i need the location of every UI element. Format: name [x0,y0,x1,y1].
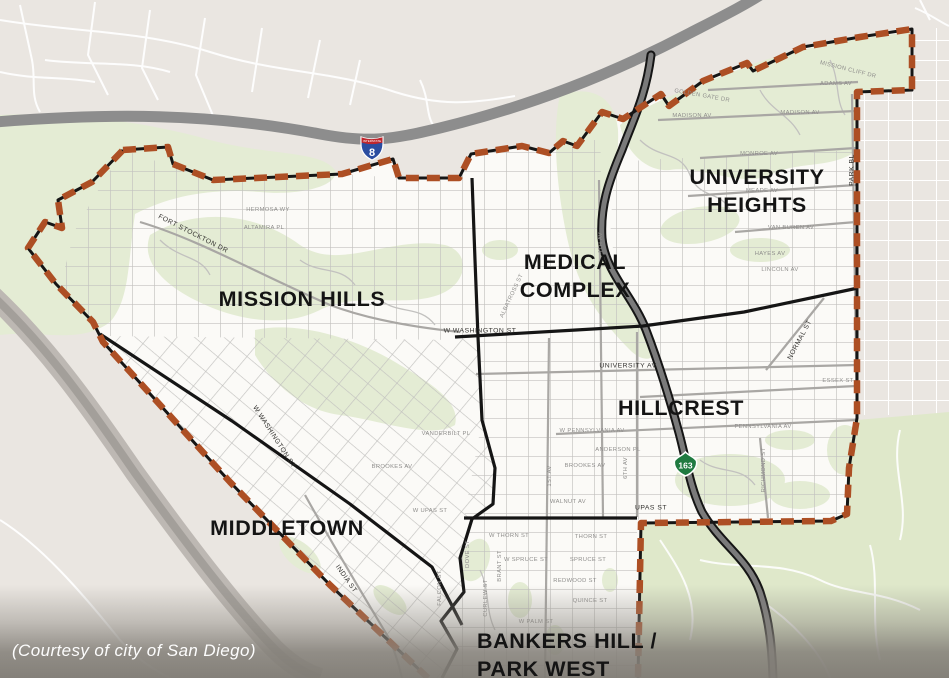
map-canvas [0,0,949,678]
map-screenshot: FORT STOCKTON DRW WASHINGTON STW WASHING… [0,0,949,678]
